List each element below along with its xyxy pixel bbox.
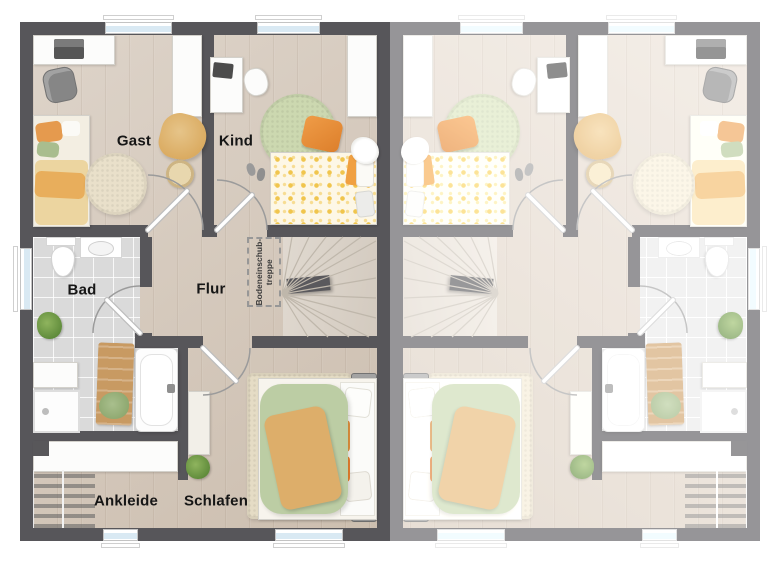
window-sill-bad [762, 246, 767, 312]
window-sill-bad [13, 246, 18, 312]
window-sill-gast [606, 15, 677, 20]
door-leaf-shadows [107, 191, 252, 381]
room-label-ankleide: Ankleide [94, 493, 158, 510]
window-sill-ankleide [101, 543, 140, 548]
window-sill-gast [103, 15, 174, 20]
room-label-schlafen: Schlafen [184, 493, 248, 510]
attic-hatch-label: Bodeneinschub-treppe [254, 239, 274, 306]
room-label-bad: Bad [68, 282, 97, 299]
unit-left: Bodeneinschub-treppe Gast Kind Bad Flur … [20, 22, 390, 541]
window-sill-schlafen [273, 543, 345, 548]
room-label-gast: Gast [117, 133, 151, 150]
window-sill-kind [255, 15, 322, 20]
room-label-kind: Kind [219, 133, 253, 150]
stair-treads [282, 237, 376, 337]
stair-treads [404, 237, 498, 337]
unit-right-mirrored [390, 22, 760, 541]
window-sill-ankleide [640, 543, 679, 548]
attic-hatch-box: Bodeneinschub-treppe [247, 237, 281, 307]
doors-and-stairs-overlay [390, 22, 760, 541]
door-leaf-shadows [528, 191, 673, 381]
floor-plan-image: Bodeneinschub-treppe Gast Kind Bad Flur … [0, 0, 775, 567]
window-sill-schlafen [435, 543, 507, 548]
window-sill-kind [458, 15, 525, 20]
room-label-flur: Flur [196, 281, 225, 298]
